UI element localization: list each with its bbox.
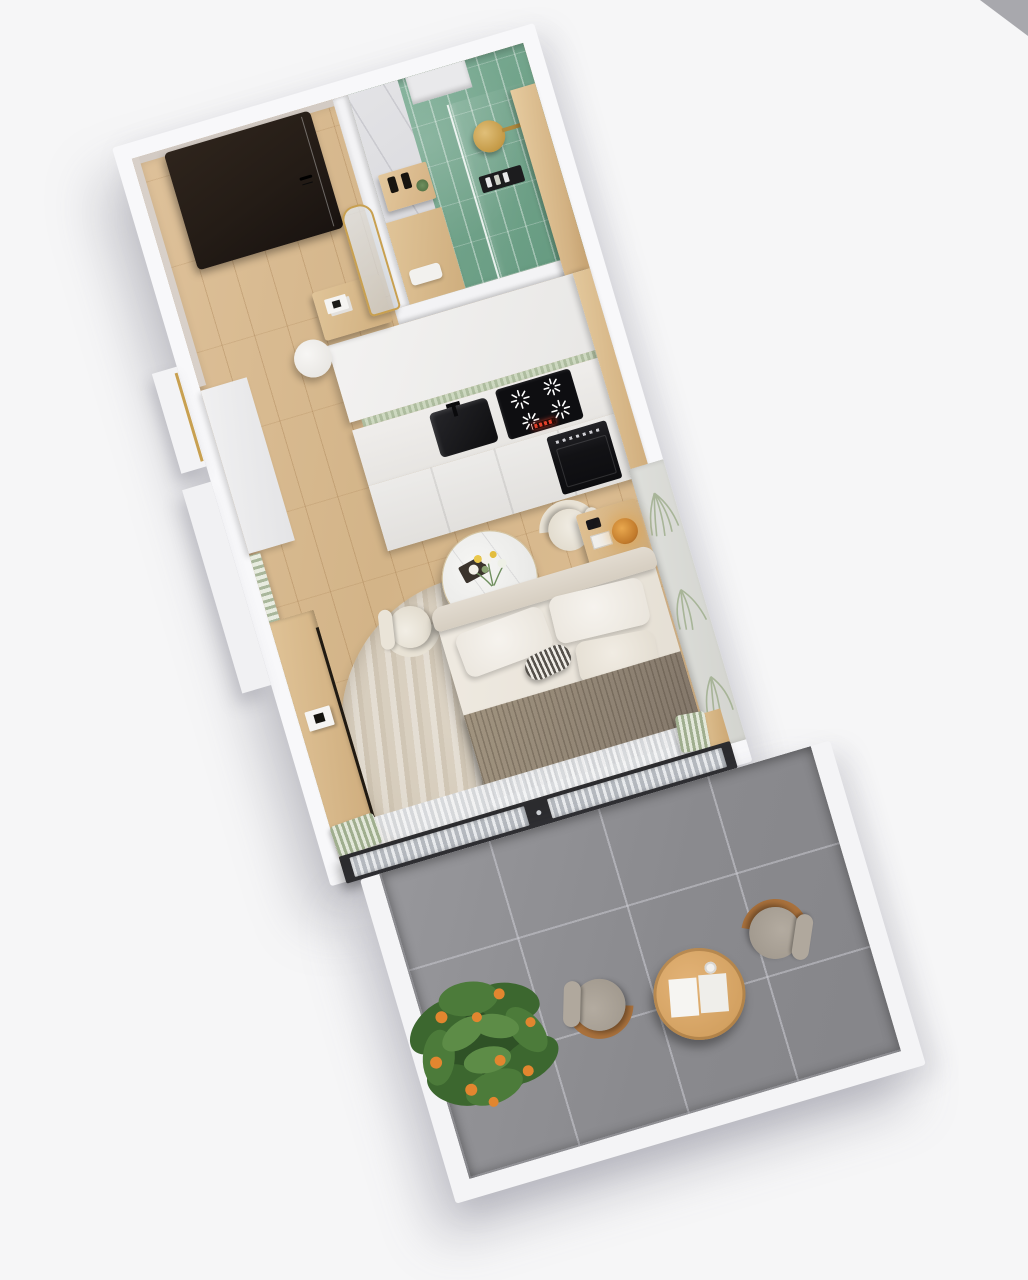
soap-bottle bbox=[387, 176, 399, 194]
towel bbox=[408, 262, 443, 286]
main-unit bbox=[112, 23, 753, 886]
coffee-cup bbox=[703, 960, 718, 975]
apartment-3d-plan bbox=[112, 0, 926, 1212]
soap-bottle bbox=[400, 172, 412, 190]
white-book bbox=[590, 531, 613, 550]
amber-table-lamp bbox=[609, 515, 641, 547]
door-knob bbox=[536, 810, 542, 816]
bathroom-niche bbox=[405, 60, 472, 104]
black-object bbox=[585, 517, 601, 531]
lounge-chair-right bbox=[737, 894, 814, 971]
kitchen-sink bbox=[429, 397, 500, 458]
open-magazine bbox=[668, 978, 699, 1018]
magazines bbox=[324, 294, 349, 315]
faucet bbox=[450, 402, 458, 417]
render-canvas bbox=[0, 0, 1028, 1280]
door-handle bbox=[299, 174, 312, 181]
small-plant bbox=[415, 178, 430, 193]
desk-magazine bbox=[304, 705, 335, 732]
corner-wedge-shadow bbox=[980, 0, 1028, 36]
